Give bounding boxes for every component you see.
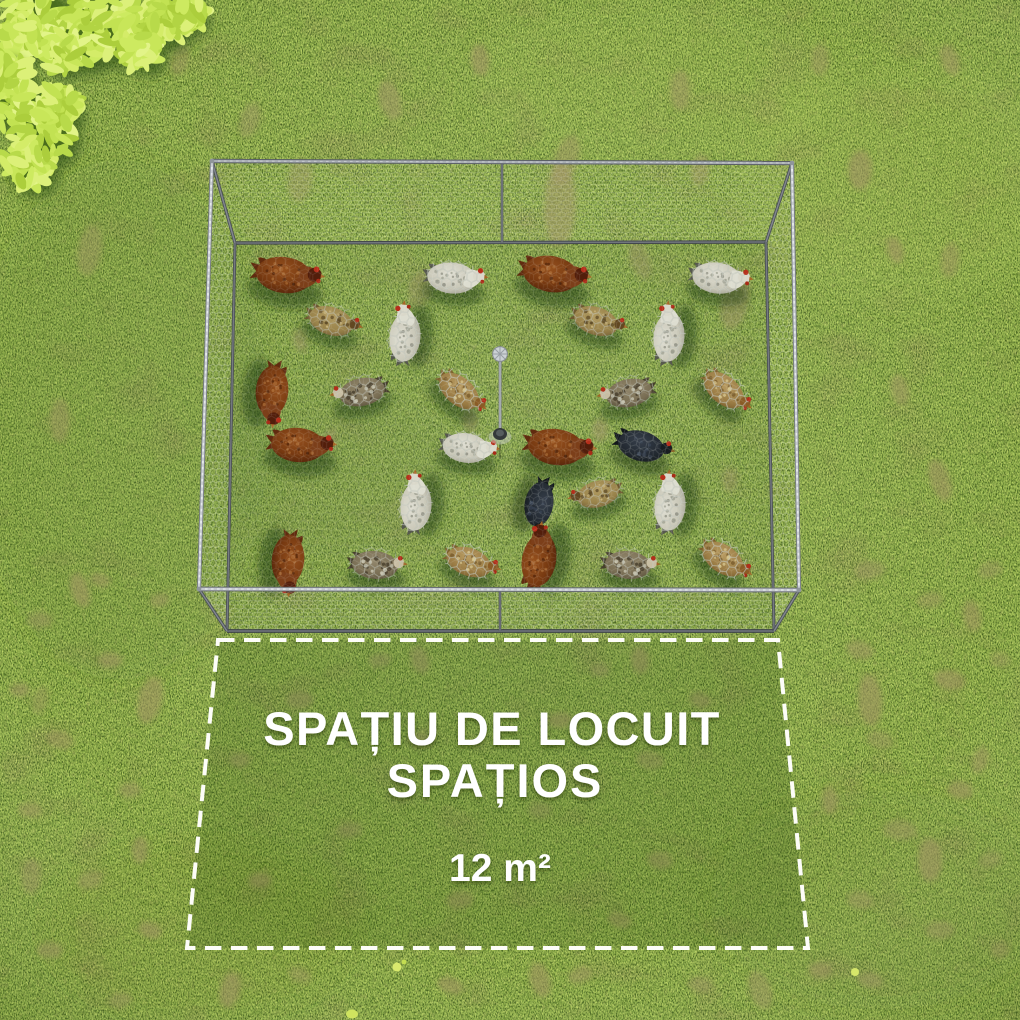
svg-text:SPAȚIU DE LOCUIT: SPAȚIU DE LOCUIT [263,702,721,756]
svg-text:12 m²: 12 m² [449,847,551,890]
svg-text:SPAȚIOS: SPAȚIOS [387,754,604,808]
